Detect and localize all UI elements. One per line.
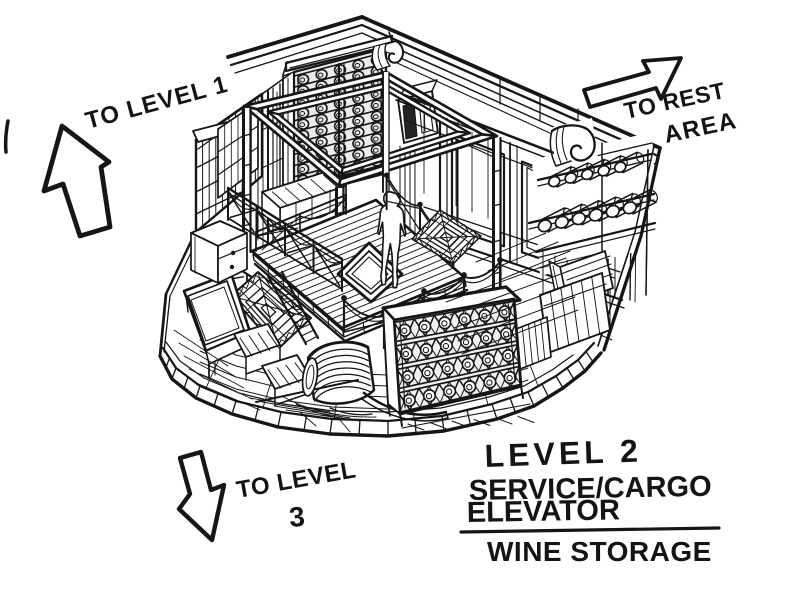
svg-text:WINE STORAGE: WINE STORAGE bbox=[487, 536, 712, 567]
svg-text:3: 3 bbox=[288, 501, 306, 533]
svg-text:LEVEL 2: LEVEL 2 bbox=[484, 433, 642, 474]
svg-text:ELEVATOR: ELEVATOR bbox=[467, 494, 621, 529]
